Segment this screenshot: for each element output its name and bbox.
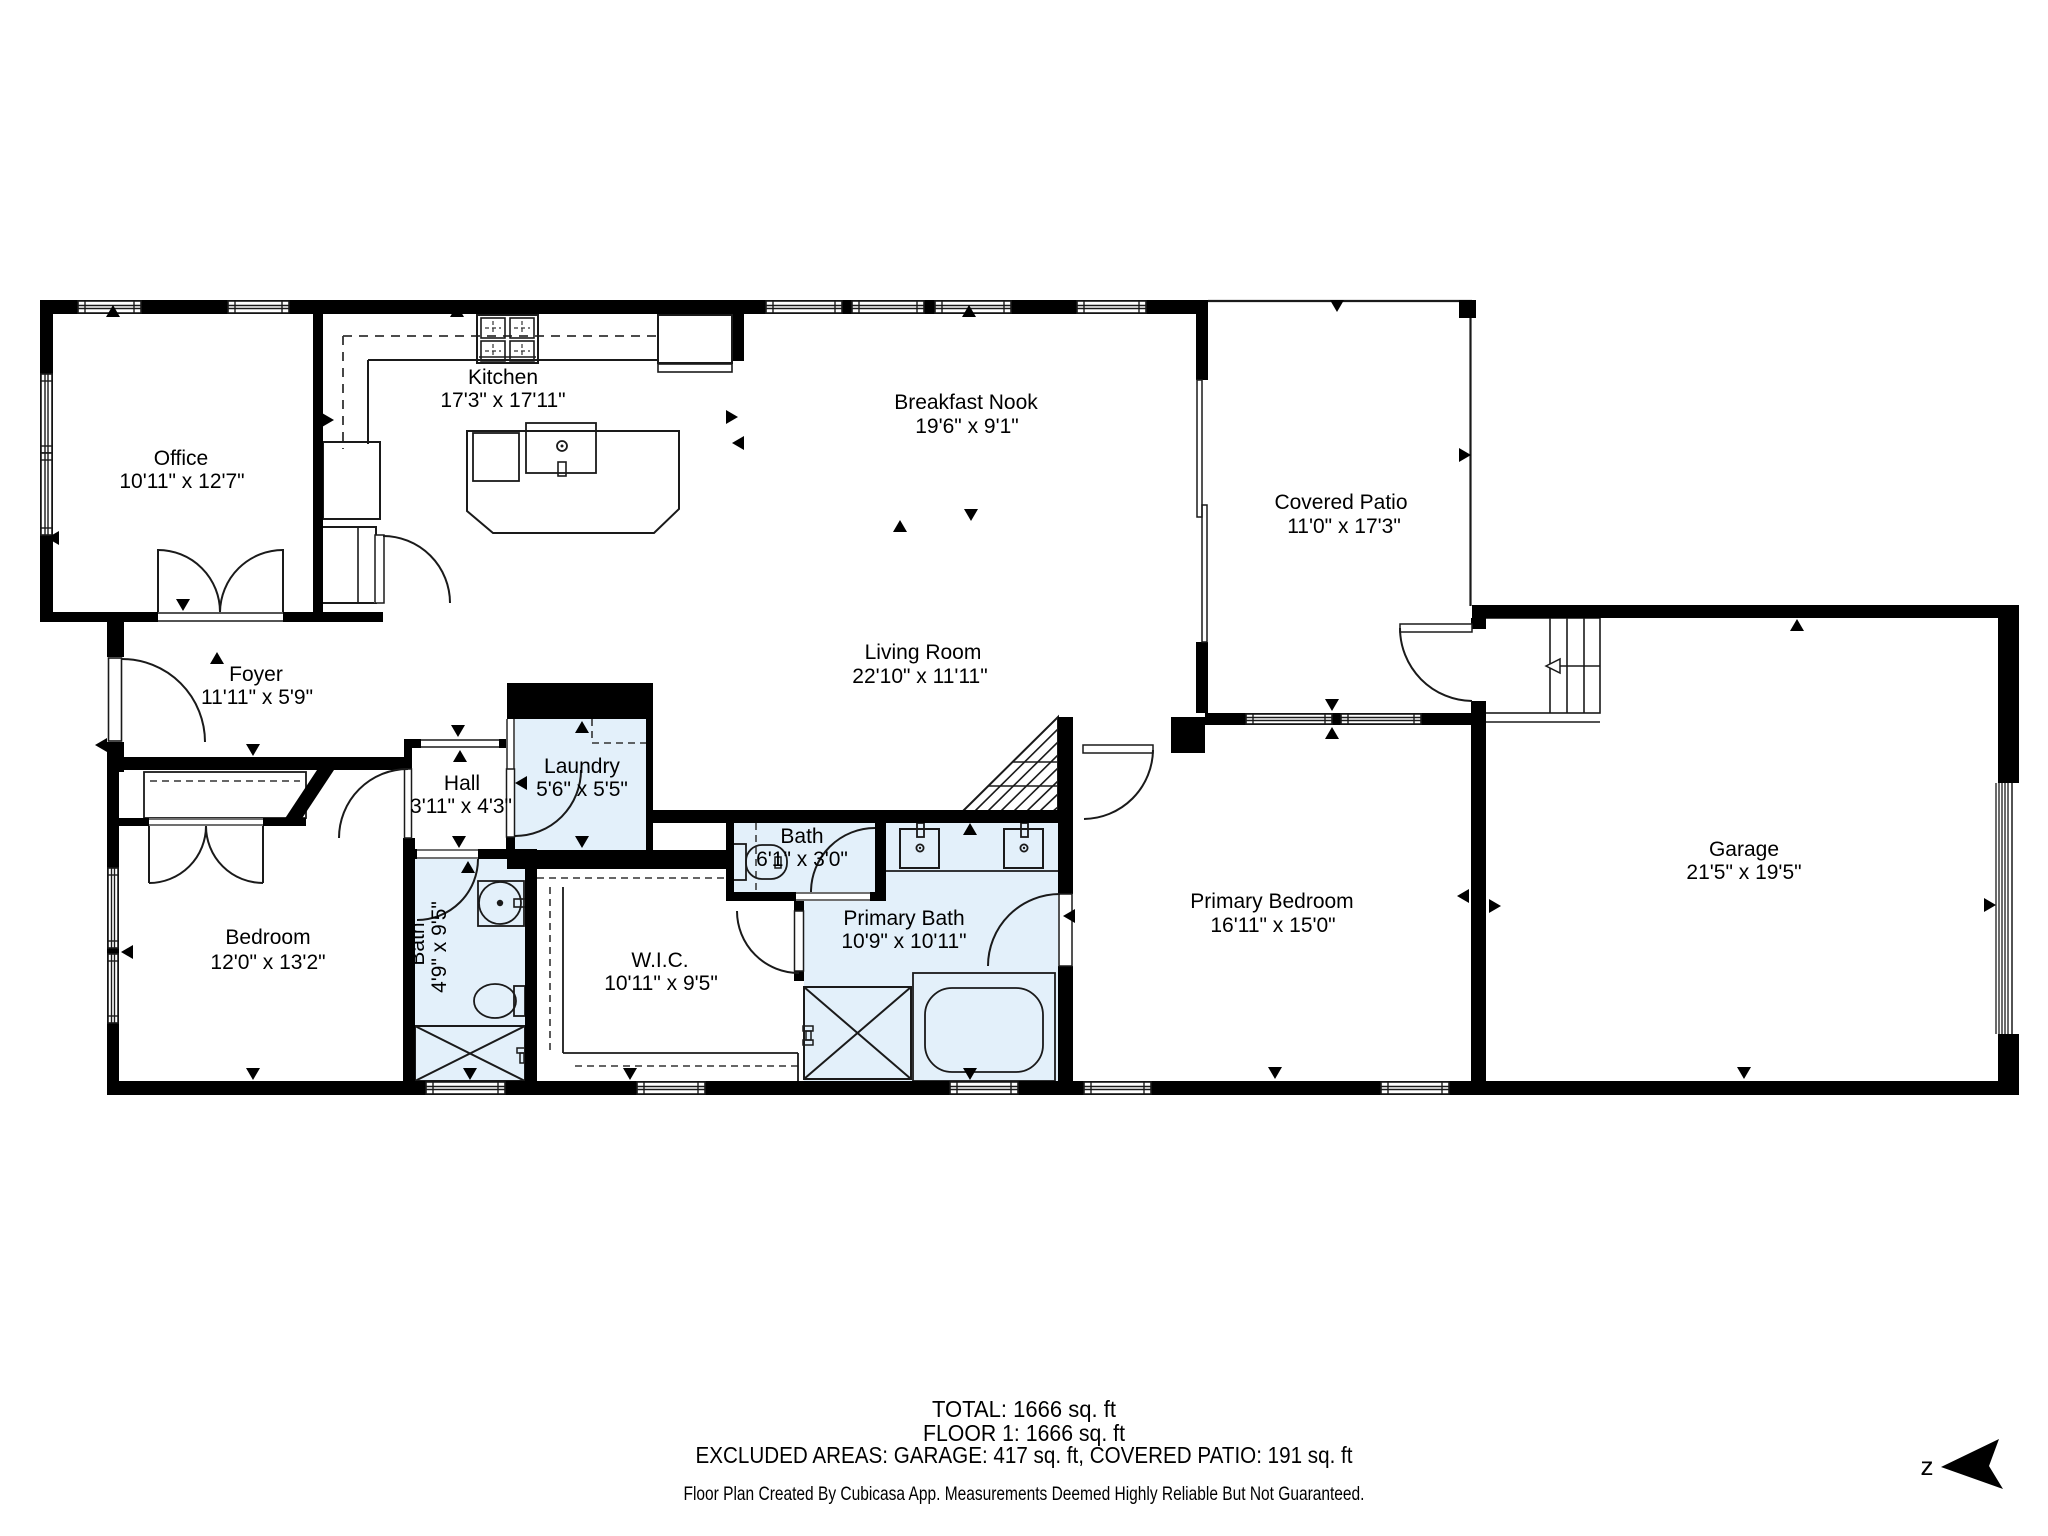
svg-text:Hall: Hall (444, 772, 480, 795)
svg-text:Primary Bath: Primary Bath (843, 907, 964, 930)
svg-text:17'3" x 17'11": 17'3" x 17'11" (440, 389, 565, 412)
svg-text:Foyer: Foyer (229, 663, 283, 686)
svg-text:EXCLUDED AREAS: GARAGE: 417 sq: EXCLUDED AREAS: GARAGE: 417 sq. ft, COVE… (696, 1442, 1354, 1468)
svg-text:Garage: Garage (1709, 838, 1779, 861)
svg-text:16'11" x 15'0": 16'11" x 15'0" (1210, 914, 1335, 937)
svg-text:21'5" x 19'5": 21'5" x 19'5" (1686, 861, 1801, 884)
svg-text:Kitchen: Kitchen (468, 366, 538, 389)
svg-text:Office: Office (154, 447, 208, 470)
svg-text:10'11" x 9'5": 10'11" x 9'5" (604, 972, 718, 995)
svg-text:Primary Bedroom: Primary Bedroom (1190, 890, 1353, 913)
svg-text:4'9" x 9'5": 4'9" x 9'5" (428, 901, 451, 993)
svg-text:Bath: Bath (780, 825, 823, 848)
svg-text:11'11" x 5'9": 11'11" x 5'9" (201, 686, 313, 709)
svg-text:22'10" x 11'11": 22'10" x 11'11" (852, 665, 987, 688)
svg-text:W.I.C.: W.I.C. (631, 949, 688, 972)
svg-text:Floor Plan Created By Cubicasa: Floor Plan Created By Cubicasa App. Meas… (684, 1484, 1365, 1505)
svg-text:12'0" x 13'2": 12'0" x 13'2" (210, 951, 325, 974)
svg-text:5'6" x 5'5": 5'6" x 5'5" (536, 778, 628, 801)
svg-text:Bedroom: Bedroom (225, 926, 310, 949)
svg-text:Living Room: Living Room (865, 641, 982, 664)
svg-text:10'9" x 10'11": 10'9" x 10'11" (841, 930, 966, 953)
svg-text:19'6" x 9'1": 19'6" x 9'1" (915, 415, 1019, 438)
svg-text:z: z (1921, 1451, 1934, 1481)
svg-text:TOTAL: 1666 sq. ft: TOTAL: 1666 sq. ft (932, 1396, 1117, 1422)
svg-text:Breakfast Nook: Breakfast Nook (894, 391, 1038, 414)
svg-text:Covered Patio: Covered Patio (1274, 491, 1407, 514)
svg-text:11'0" x 17'3": 11'0" x 17'3" (1287, 515, 1401, 538)
svg-text:Bath: Bath (406, 922, 429, 965)
svg-text:3'11" x 4'3": 3'11" x 4'3" (410, 795, 512, 818)
svg-text:10'11" x 12'7": 10'11" x 12'7" (119, 470, 244, 493)
svg-text:6'1" x 3'0": 6'1" x 3'0" (756, 848, 848, 871)
svg-text:Laundry: Laundry (544, 755, 620, 778)
